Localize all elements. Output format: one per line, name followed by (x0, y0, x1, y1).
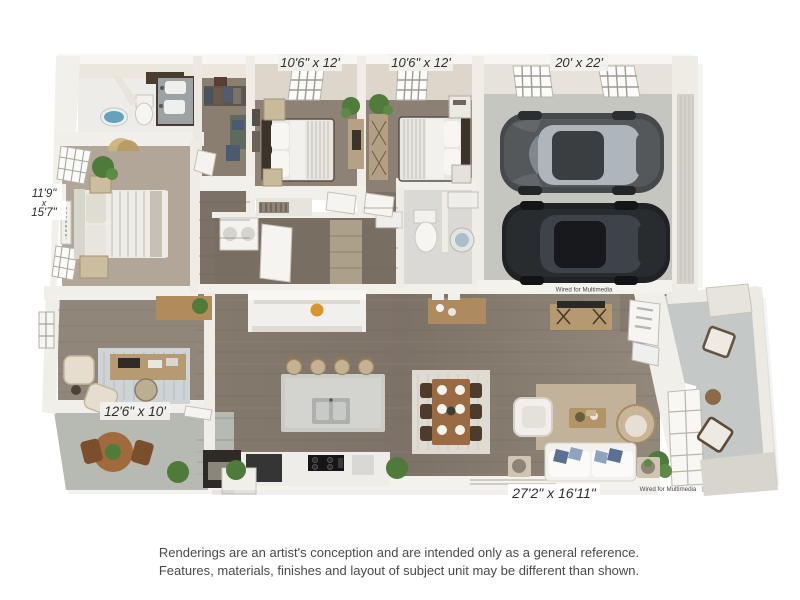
svg-text:12'6" x 10': 12'6" x 10' (104, 404, 166, 419)
svg-text:Wired for Multimedia: Wired for Multimedia (556, 287, 613, 294)
svg-text:Features, materials, finishes: Features, materials, finishes and layout… (159, 563, 639, 578)
svg-text:10'6" x 12': 10'6" x 12' (391, 55, 451, 70)
svg-text:20' x 22': 20' x 22' (554, 55, 603, 70)
svg-text:27'2" x 16'11": 27'2" x 16'11" (511, 485, 597, 501)
svg-text:Wired for Multimedia: Wired for Multimedia (640, 486, 697, 493)
svg-text:15'7": 15'7" (31, 207, 57, 219)
svg-text:Renderings are an artist's con: Renderings are an artist's conception an… (159, 545, 639, 560)
svg-text:10'6" x 12': 10'6" x 12' (280, 55, 340, 70)
